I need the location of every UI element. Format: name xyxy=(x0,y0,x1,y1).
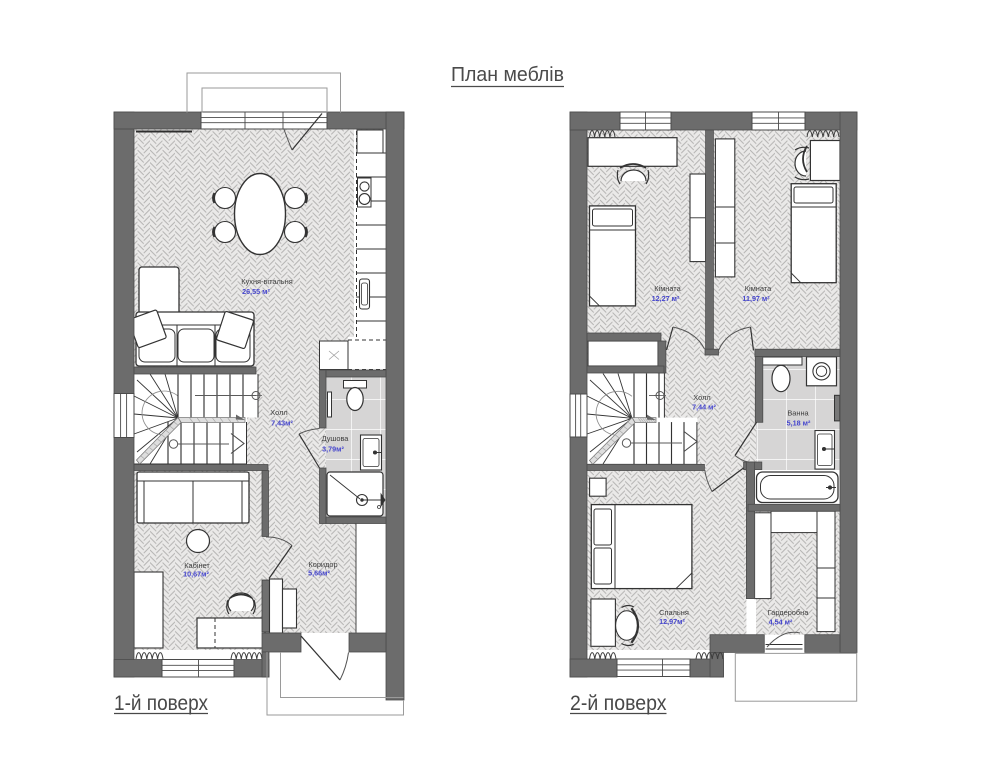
svg-text:Холл: Холл xyxy=(270,408,287,417)
svg-text:5,66м²: 5,66м² xyxy=(308,569,330,578)
svg-text:11,97 м²: 11,97 м² xyxy=(742,294,770,303)
svg-text:12,97м²: 12,97м² xyxy=(659,617,685,626)
svg-text:Спальня: Спальня xyxy=(659,608,689,617)
svg-text:Холл: Холл xyxy=(693,393,710,402)
svg-text:Душова: Душова xyxy=(322,434,350,443)
svg-text:12,27 м²: 12,27 м² xyxy=(652,294,680,303)
svg-text:4,54 м²: 4,54 м² xyxy=(769,618,793,627)
svg-text:3,79м²: 3,79м² xyxy=(322,445,344,454)
svg-text:План меблів: План меблів xyxy=(451,63,564,86)
svg-text:Кімната: Кімната xyxy=(654,284,681,293)
svg-text:7,43м²: 7,43м² xyxy=(271,419,293,428)
svg-text:Гардеробна: Гардеробна xyxy=(768,608,810,617)
svg-text:10,67м²: 10,67м² xyxy=(183,570,209,579)
svg-text:Кімната: Кімната xyxy=(745,284,772,293)
svg-text:1-й поверх: 1-й поверх xyxy=(114,692,208,715)
svg-text:Кухня-вітальня: Кухня-вітальня xyxy=(241,277,292,286)
svg-text:5,18 м²: 5,18 м² xyxy=(787,419,811,428)
svg-text:26,55 м²: 26,55 м² xyxy=(242,287,270,296)
svg-text:2-й поверх: 2-й поверх xyxy=(570,692,667,715)
svg-text:7,44 м²: 7,44 м² xyxy=(692,403,716,412)
svg-text:Ванна: Ванна xyxy=(787,409,809,418)
